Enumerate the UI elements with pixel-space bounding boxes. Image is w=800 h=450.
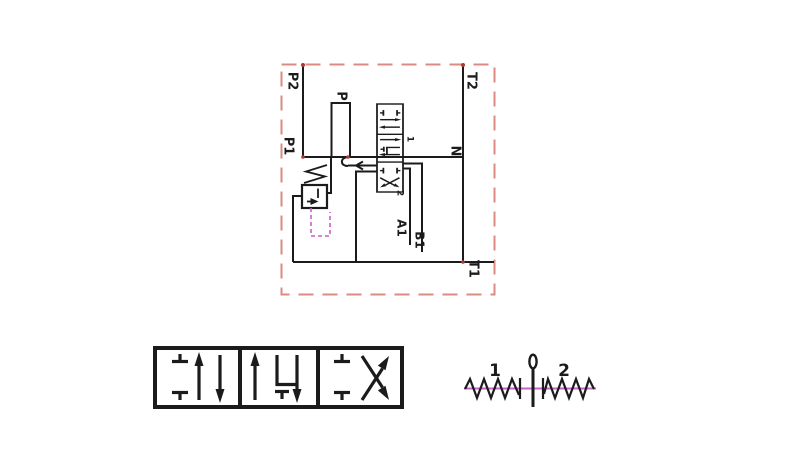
pressure-relief-valve	[302, 165, 330, 236]
port-label-b1: B1	[413, 231, 427, 249]
junction-dot	[346, 155, 350, 159]
junction-dot	[301, 155, 305, 159]
schematic-canvas: P2 P1 P T2 N T1 A1 B1 1 2 1 2	[0, 0, 800, 450]
port-label-p2: P2	[285, 72, 300, 91]
pilot-line-dashed	[311, 208, 330, 236]
relief-spring-icon	[304, 165, 327, 183]
position-label-2: 2	[395, 190, 405, 196]
lever-position-2-label: 2	[558, 361, 570, 381]
hydraulic-lines	[293, 65, 494, 262]
main-circuit: P2 P1 P T2 N T1 A1 B1 1 2	[281, 63, 495, 295]
port-label-a1: A1	[395, 219, 409, 237]
port-label-p: P	[334, 91, 349, 101]
position-label-1: 1	[405, 136, 415, 142]
junction-dots	[301, 63, 465, 264]
directional-valve-symbol	[155, 348, 402, 407]
port-labels: P2 P1 P T2 N T1 A1 B1 1 2	[281, 72, 481, 278]
lever-position-1-label: 1	[489, 361, 501, 381]
junction-dot	[461, 260, 465, 264]
junction-dot	[301, 63, 305, 67]
directional-valve-rotated	[377, 104, 403, 192]
junction-dot	[461, 63, 465, 67]
plug-channel-p	[332, 103, 351, 157]
lever-detent-symbol: 1 2	[464, 355, 596, 407]
line-relief-left	[293, 196, 302, 262]
port-label-t1: T1	[466, 260, 481, 278]
relief-arrow-head	[311, 198, 319, 205]
schematic-page: P2 P1 P T2 N T1 A1 B1 1 2 1 2	[0, 0, 800, 450]
relief-valve-body	[302, 185, 327, 208]
line-valve-return	[356, 172, 377, 263]
port-label-t2: T2	[464, 72, 479, 90]
port-label-n: N	[448, 146, 463, 157]
port-label-p1: P1	[281, 137, 296, 156]
lever-knob	[529, 355, 536, 369]
